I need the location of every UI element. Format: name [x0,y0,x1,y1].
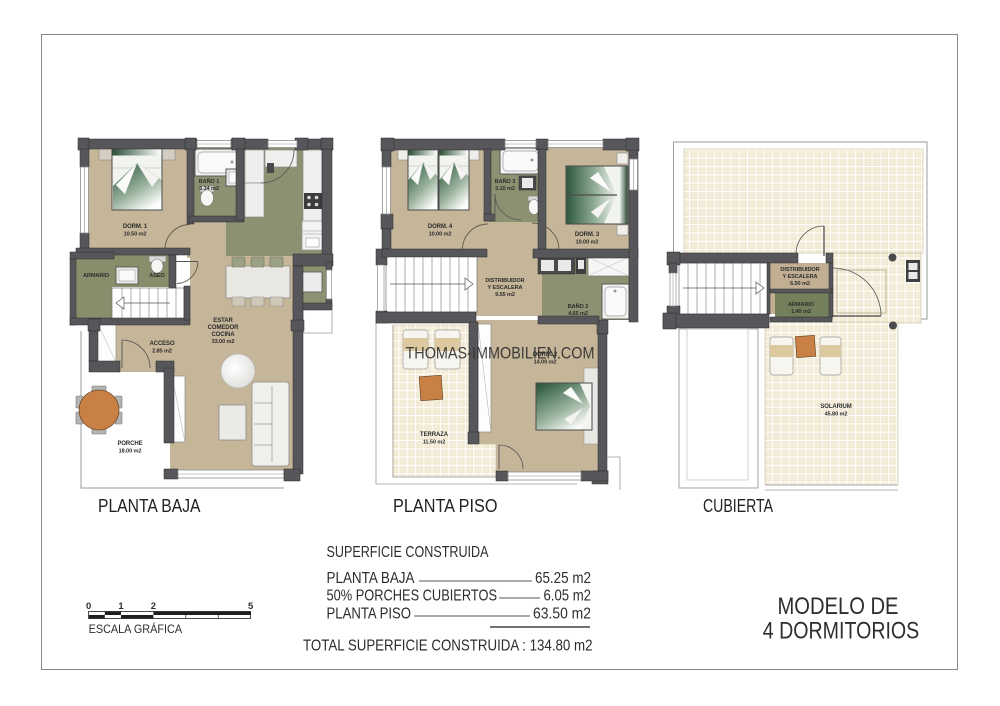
svg-text:BAÑO 2: BAÑO 2 [568,303,589,310]
svg-text:ACCESO: ACCESO [149,341,175,347]
svg-text:PORCHE: PORCHE [117,441,142,447]
svg-text:COMEDOR: COMEDOR [208,325,239,331]
svg-text:ASEO: ASEO [149,273,165,279]
svg-text:0: 0 [86,601,91,612]
svg-text:DORM. 1: DORM. 1 [123,224,148,230]
svg-text:10.00 m2: 10.00 m2 [576,240,599,246]
svg-text:BAÑO 3: BAÑO 3 [495,178,516,185]
svg-text:11.50 m2: 11.50 m2 [423,440,446,446]
svg-text:Y ESCALERA: Y ESCALERA [783,274,818,280]
svg-text:COCINA: COCINA [211,332,235,338]
svg-text:2.85 m2: 2.85 m2 [152,349,172,355]
svg-text:65.25 m2: 65.25 m2 [535,570,591,587]
svg-text:1.40 m2: 1.40 m2 [791,309,811,315]
svg-text:MODELO DE: MODELO DE [778,593,899,620]
svg-text:10.00 m2: 10.00 m2 [429,232,452,238]
svg-text:THOMAS-IMMOBILIEN.COM: THOMAS-IMMOBILIEN.COM [406,345,595,363]
svg-text:ESTAR: ESTAR [213,318,233,324]
svg-text:Y ESCALERA: Y ESCALERA [488,285,523,291]
svg-text:10.50 m2: 10.50 m2 [124,232,147,238]
svg-text:SUPERFICIE CONSTRUIDA: SUPERFICIE CONSTRUIDA [327,544,490,561]
svg-text:4 DORMITORIOS: 4 DORMITORIOS [763,618,920,645]
svg-text:BAÑO 1: BAÑO 1 [199,178,220,185]
svg-text:DORM. 4: DORM. 4 [428,224,453,230]
svg-text:DISTRIBUIDOR: DISTRIBUIDOR [485,278,524,284]
svg-text:33.00 m2: 33.00 m2 [212,339,235,345]
svg-text:9.55 m2: 9.55 m2 [495,292,515,298]
svg-text:3.34 m2: 3.34 m2 [199,186,219,192]
svg-text:3.10 m2: 3.10 m2 [495,186,515,192]
svg-text:DORM. 3: DORM. 3 [575,232,600,238]
svg-text:ARMARIO: ARMARIO [83,273,110,279]
svg-text:5: 5 [248,601,254,612]
svg-text:1: 1 [118,601,124,612]
svg-text:SOLARIUM: SOLARIUM [820,404,851,410]
svg-text:TOTAL SUPERFICIE CONSTRUIDA :: TOTAL SUPERFICIE CONSTRUIDA : 134.80 m2 [303,638,593,655]
svg-text:2: 2 [151,601,156,612]
svg-text:63.50 m2: 63.50 m2 [533,606,591,623]
svg-text:DISTRIBUIDOR: DISTRIBUIDOR [780,267,819,273]
svg-text:PLANTA BAJA: PLANTA BAJA [327,570,416,587]
svg-text:4.65 m2: 4.65 m2 [568,311,588,317]
svg-text:18.00 m2: 18.00 m2 [119,449,142,455]
svg-text:ESCALA GRÁFICA: ESCALA GRÁFICA [89,621,183,636]
svg-text:45.80 m2: 45.80 m2 [825,412,848,418]
svg-text:PLANTA PISO: PLANTA PISO [393,496,498,516]
svg-text:ARMARIO: ARMARIO [788,302,815,308]
svg-text:6.50 m2: 6.50 m2 [790,281,810,287]
svg-text:50% PORCHES CUBIERTOS: 50% PORCHES CUBIERTOS [327,588,498,605]
svg-text:6.05 m2: 6.05 m2 [544,588,592,605]
svg-text:TERRAZA: TERRAZA [420,432,449,438]
svg-text:PLANTA BAJA: PLANTA BAJA [98,496,201,516]
svg-text:CUBIERTA: CUBIERTA [703,496,773,516]
svg-text:PLANTA PISO: PLANTA PISO [327,606,412,623]
